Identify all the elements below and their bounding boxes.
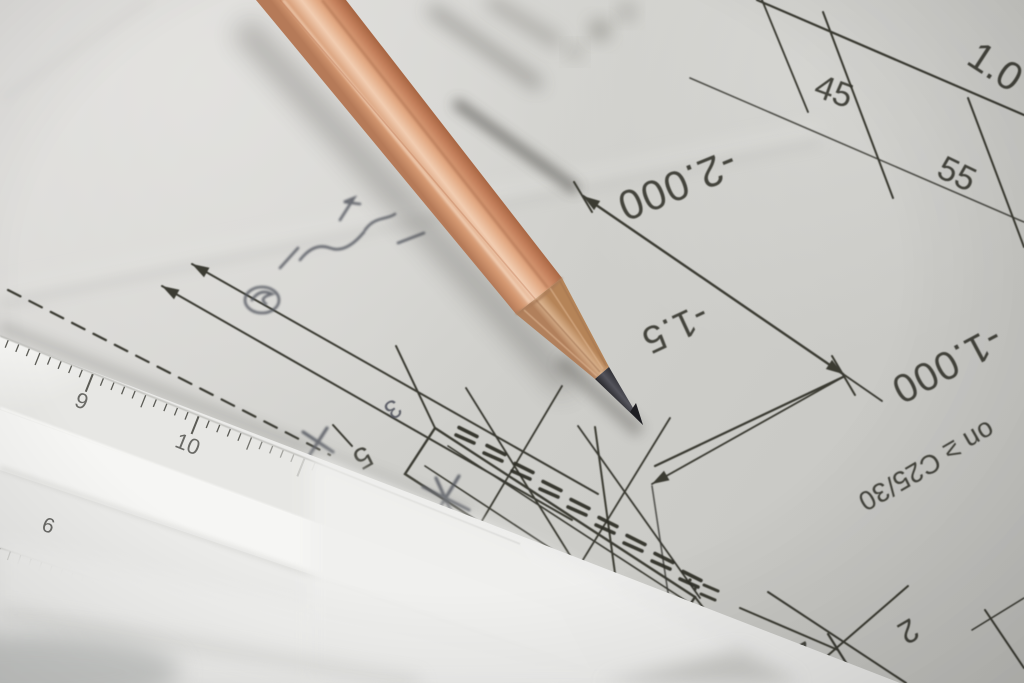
photo-canvas: -2.000 -1.5 -1.000 1.0 45 55 25 2 5 3 on… — [0, 0, 1024, 683]
photo-of-technical-drawing: -2.000 -1.5 -1.000 1.0 45 55 25 2 5 3 on… — [0, 0, 1024, 683]
